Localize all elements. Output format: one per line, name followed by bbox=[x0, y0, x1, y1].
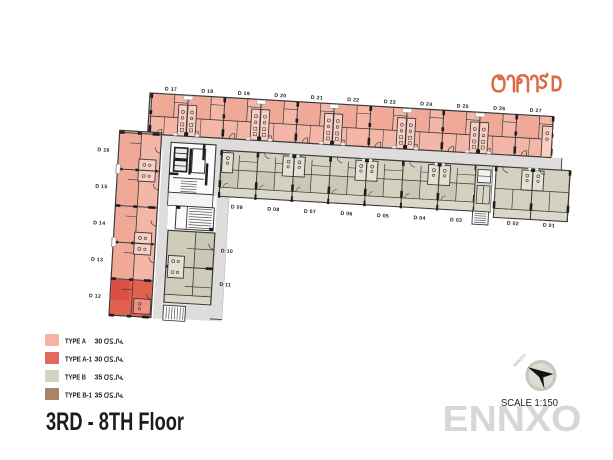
svg-text:3RD - 8TH Floor: 3RD - 8TH Floor bbox=[46, 408, 184, 436]
svg-text:30: 30 bbox=[95, 339, 103, 346]
svg-text:35: 35 bbox=[95, 375, 103, 382]
svg-text:TYPE B-1: TYPE B-1 bbox=[65, 393, 92, 400]
svg-text:D 25: D 25 bbox=[457, 103, 470, 110]
svg-text:D 08: D 08 bbox=[267, 207, 280, 214]
svg-text:ENNXO: ENNXO bbox=[443, 398, 582, 439]
svg-text:TYPE B: TYPE B bbox=[65, 375, 86, 382]
svg-text:D 03: D 03 bbox=[450, 217, 463, 224]
svg-text:D 12: D 12 bbox=[89, 293, 102, 300]
svg-text:D 13: D 13 bbox=[91, 257, 104, 264]
svg-text:D 01: D 01 bbox=[543, 223, 556, 230]
svg-text:D 04: D 04 bbox=[413, 215, 426, 222]
svg-text:D 07: D 07 bbox=[304, 209, 317, 216]
svg-text:D 15: D 15 bbox=[95, 184, 108, 191]
svg-text:D 19: D 19 bbox=[238, 91, 251, 98]
svg-text:D 21: D 21 bbox=[311, 95, 324, 102]
svg-text:30: 30 bbox=[95, 357, 103, 364]
svg-text:D 18: D 18 bbox=[201, 88, 214, 95]
svg-text:TYPE A-1: TYPE A-1 bbox=[65, 357, 92, 364]
svg-text:D 17: D 17 bbox=[165, 86, 178, 93]
svg-text:D 05: D 05 bbox=[377, 213, 390, 220]
svg-text:D 09: D 09 bbox=[231, 204, 244, 211]
svg-text:D 27: D 27 bbox=[530, 108, 543, 115]
svg-text:D 10: D 10 bbox=[221, 248, 234, 255]
svg-text:D 26: D 26 bbox=[493, 106, 506, 113]
svg-text:D 22: D 22 bbox=[347, 97, 360, 104]
svg-text:D 24: D 24 bbox=[420, 101, 433, 108]
svg-text:D 16: D 16 bbox=[97, 147, 110, 154]
svg-text:D 02: D 02 bbox=[507, 221, 520, 228]
svg-text:D: D bbox=[551, 70, 563, 96]
svg-text:D 14: D 14 bbox=[93, 220, 106, 227]
svg-text:TYPE A: TYPE A bbox=[65, 339, 86, 346]
svg-text:D 11: D 11 bbox=[219, 282, 231, 289]
svg-text:D 20: D 20 bbox=[274, 93, 287, 100]
svg-text:D 06: D 06 bbox=[340, 211, 353, 218]
svg-text:35: 35 bbox=[95, 393, 103, 400]
svg-text:D 23: D 23 bbox=[384, 99, 397, 106]
